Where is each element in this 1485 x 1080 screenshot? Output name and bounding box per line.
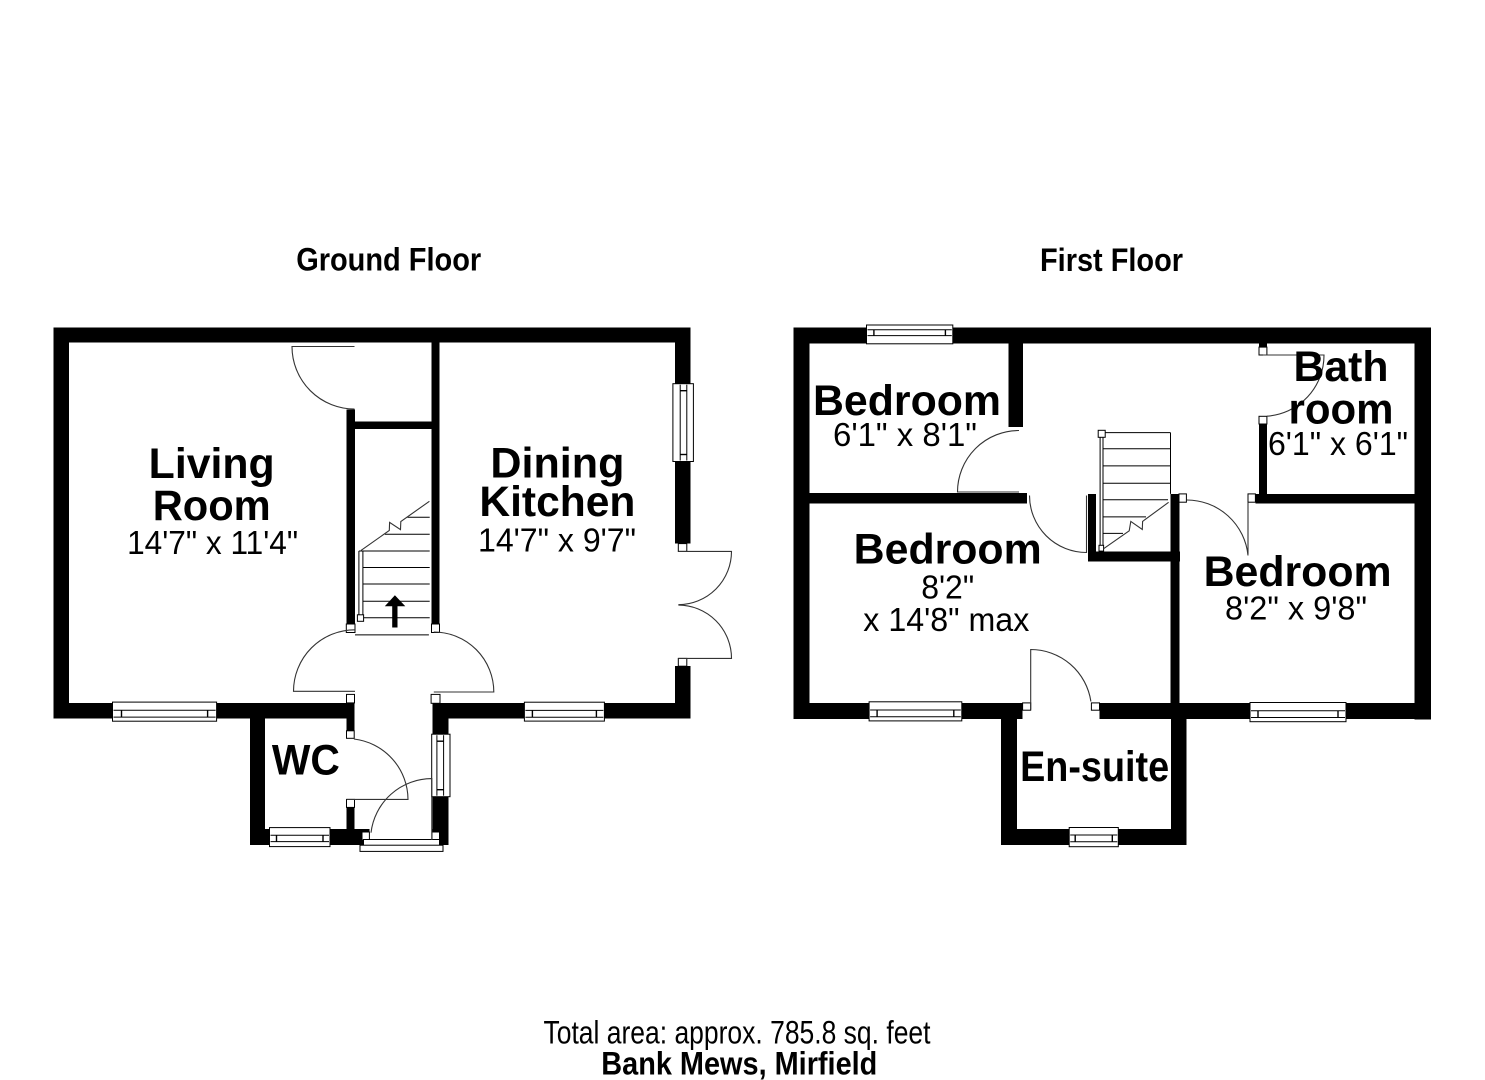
svg-text:6'1" x 6'1": 6'1" x 6'1" <box>1268 425 1408 462</box>
svg-text:Kitchen: Kitchen <box>479 479 635 526</box>
svg-text:8'2" x 9'8": 8'2" x 9'8" <box>1225 590 1367 627</box>
svg-text:Bedroom: Bedroom <box>854 526 1042 573</box>
svg-text:14'7" x 11'4": 14'7" x 11'4" <box>127 524 298 561</box>
svg-text:WC: WC <box>272 738 340 785</box>
svg-text:14'7" x 9'7": 14'7" x 9'7" <box>478 522 636 559</box>
svg-text:En-suite: En-suite <box>1020 744 1169 791</box>
svg-text:Bath: Bath <box>1294 344 1389 391</box>
svg-text:Living: Living <box>149 441 275 488</box>
svg-text:x 14'8" max: x 14'8" max <box>863 601 1029 638</box>
svg-text:First Floor: First Floor <box>1040 242 1183 278</box>
svg-text:Room: Room <box>153 483 271 530</box>
svg-text:Bank Mews, Mirfield: Bank Mews, Mirfield <box>601 1046 877 1080</box>
svg-text:6'1" x 8'1": 6'1" x 8'1" <box>833 416 977 453</box>
svg-text:Ground Floor: Ground Floor <box>296 242 481 278</box>
